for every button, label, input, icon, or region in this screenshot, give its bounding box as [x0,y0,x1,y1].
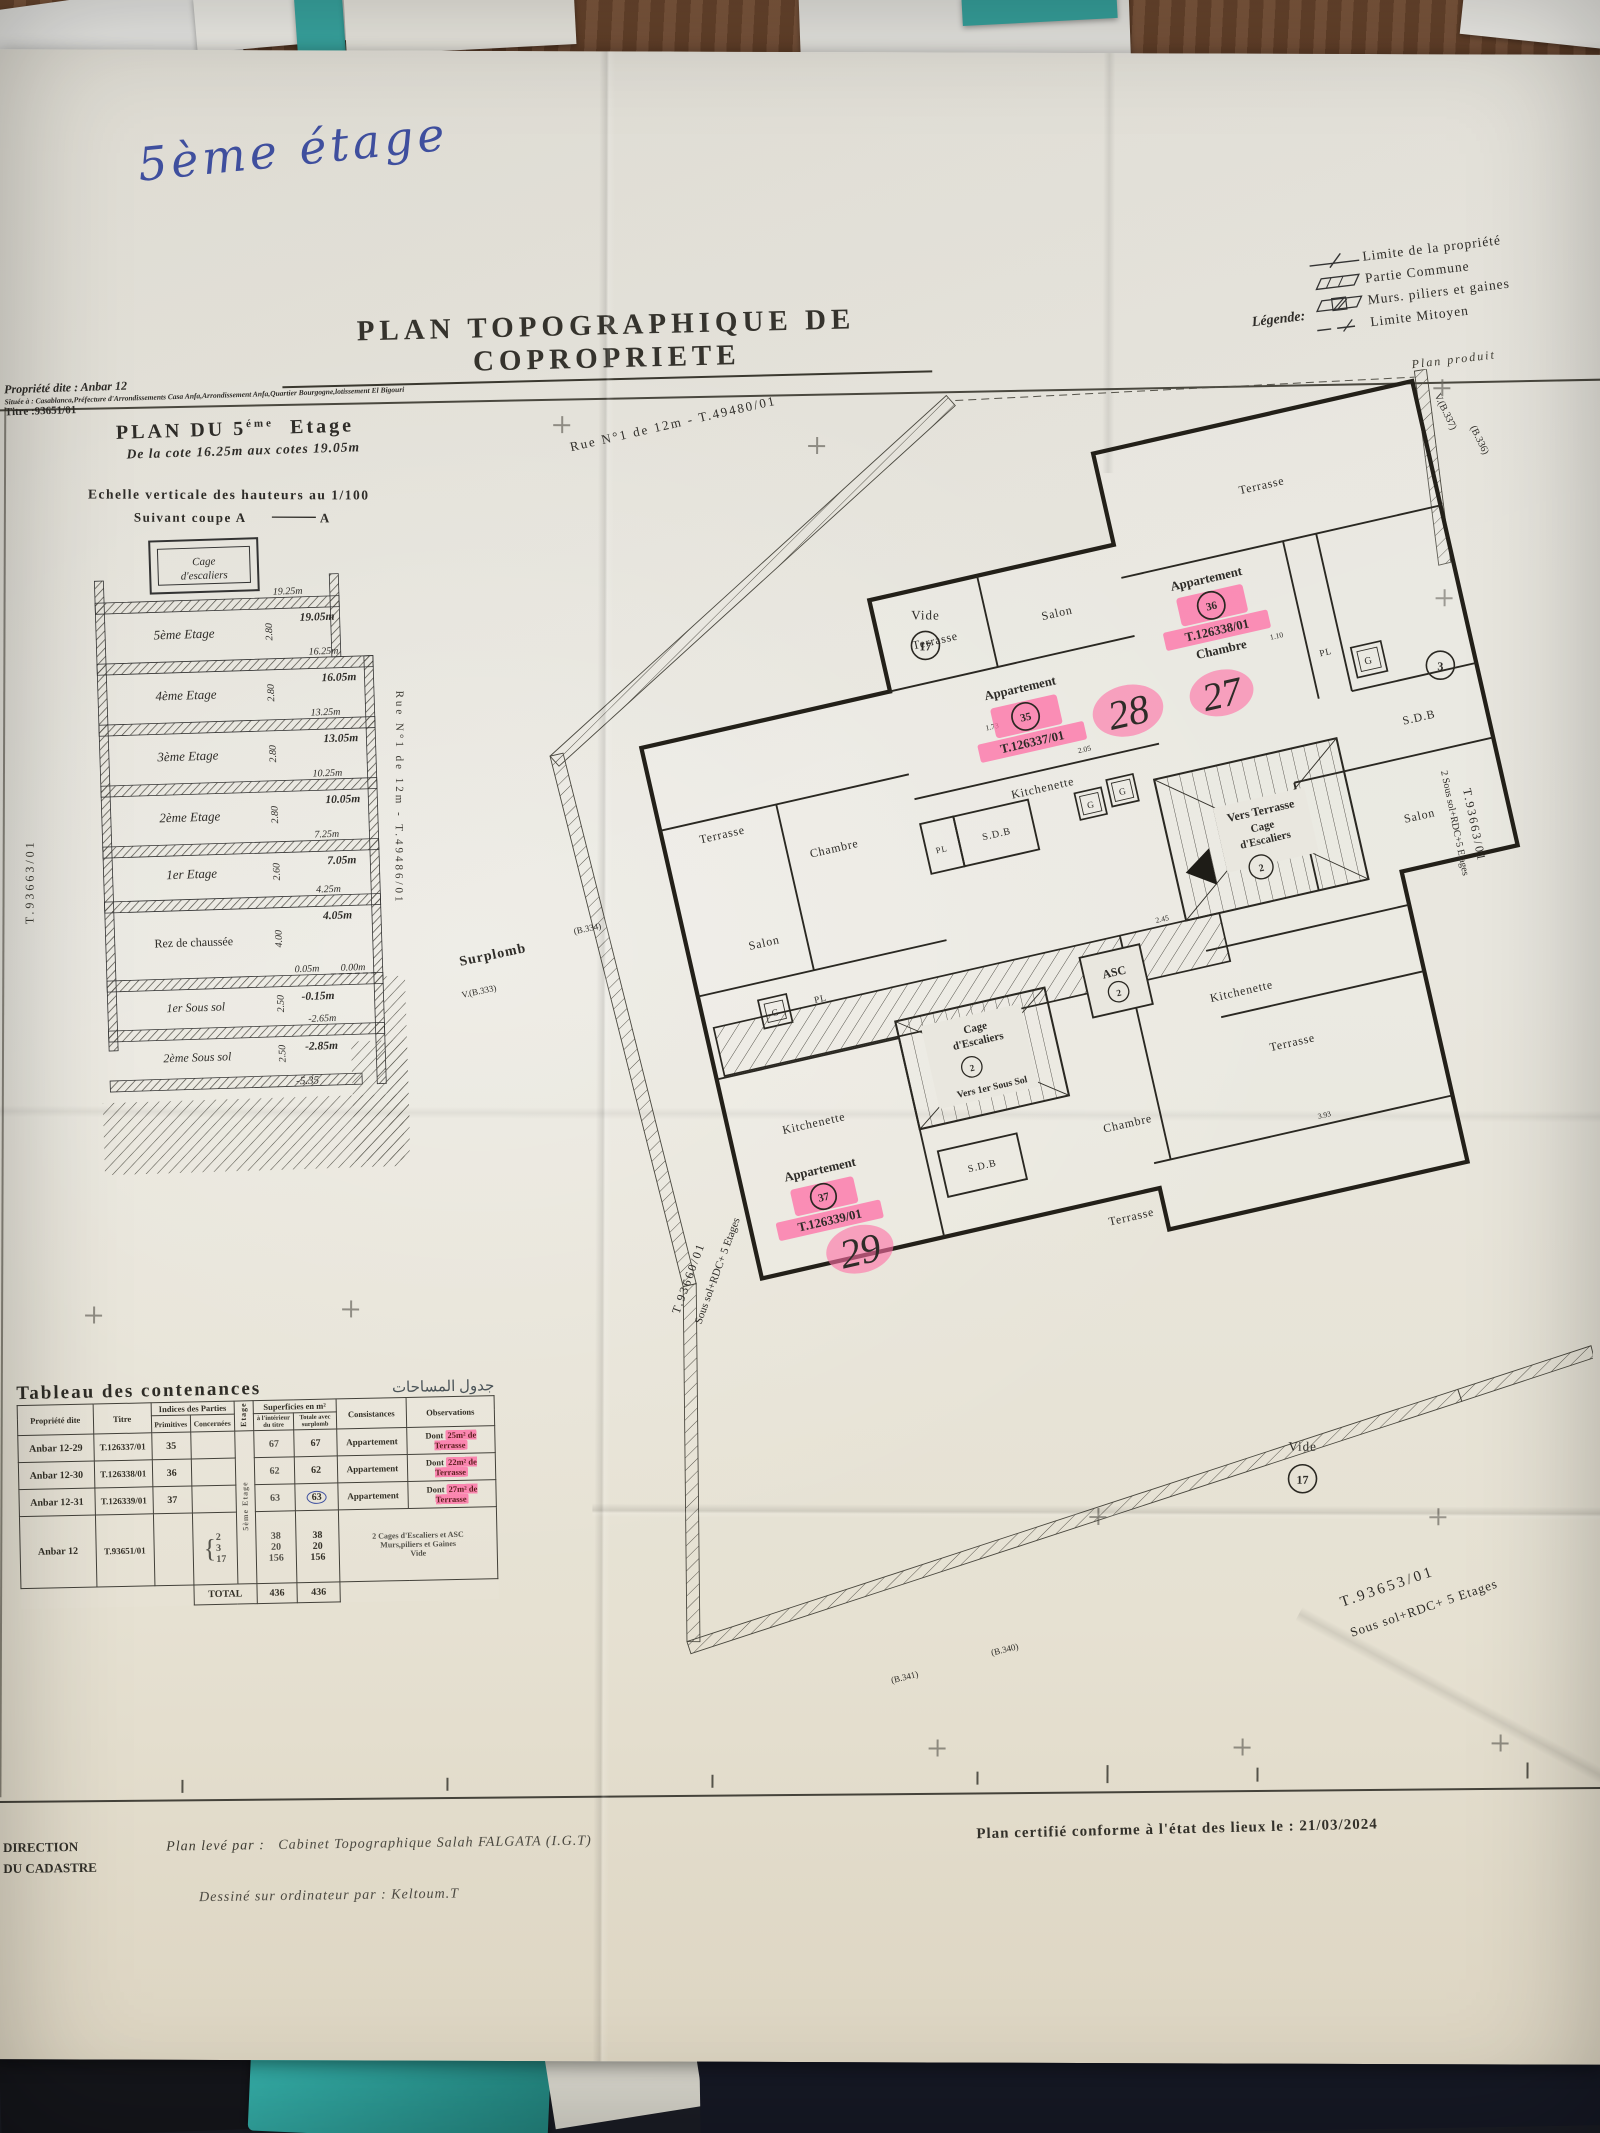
certification-note: Plan certifié conforme à l'état des lieu… [976,1816,1378,1843]
sheet-left-border [0,407,6,1797]
cell-sup2: 38 20 156 [296,1510,340,1583]
obs-prefix: Dont [425,1430,443,1440]
col-consistances: Consistances [336,1397,407,1428]
obs-prefix: Dont [426,1484,444,1494]
register-cross-icon [342,1300,359,1317]
cell-prim: 37 [153,1486,192,1514]
sup-value: 38 [258,1530,294,1542]
vide-index: 17 [1297,1473,1309,1487]
floor-plan-drawing: Vers Terrasse Cage d'Escaliers 2 ASC 2 [451,366,1596,1810]
legend-title: Légende: [1251,309,1306,331]
cote: 19.25m [273,586,303,598]
footer-tick [1106,1765,1108,1783]
cell-sup1: 62 [254,1457,295,1485]
storey-height: 2.80 [264,623,276,641]
col-sup-surplomb: Totale avec surplomb [293,1412,336,1430]
footer-tick [1526,1763,1528,1779]
cell-titre: T.126338/01 [94,1460,153,1488]
cell-cons: Appartement [337,1454,408,1482]
street-label: Rue N°1 de 12m - T.49480/01 [568,393,777,454]
section-title: Echelle verticale des hauteurs au 1/100 [88,487,370,503]
cell-sup1: 63 [255,1484,296,1512]
cell-conc [191,1485,236,1513]
plan-leve-par: Plan levé par : Cabinet Topographique Sa… [166,1834,592,1856]
vertical-section-drawing: Echelle verticale des hauteurs au 1/100 … [73,484,412,1209]
direction-line1: DIRECTION [3,1837,97,1859]
cell-conc [191,1458,236,1486]
vide-label: Vide [1288,1439,1317,1454]
cell-titre: T.126339/01 [94,1487,153,1515]
storey-height: 2.80 [268,745,280,763]
cote: 4.25m [316,884,341,896]
storey-height: 2.80 [270,806,282,824]
vide-label: Vide [911,607,940,622]
section-subtitle: Suivant coupe A [134,510,247,525]
cell-sup2: 67 [294,1429,337,1457]
floor-label: 5ème Etage [153,626,215,643]
cell-cons: Appartement [338,1481,409,1509]
handwritten-floor-note: 5ème étage [135,107,451,192]
cote: -2.65m [308,1013,336,1025]
ground-hatch [103,1094,405,1175]
contenance-table-block: Tableau des contenances جدول المساحات Pr… [16,1373,499,1609]
cell-titre: T.126337/01 [93,1433,152,1461]
floor-label: 3ème Etage [156,747,219,764]
sup-value: 156 [299,1551,337,1563]
borne-mark: V.(B.337) [1432,392,1459,432]
cell-conc: { 2 3 17 [192,1512,238,1585]
vide-index: 17 [919,639,931,653]
storey-height: 2.60 [271,863,283,881]
leve-label: Plan levé par : [166,1838,265,1854]
cell-prim: 36 [152,1459,191,1487]
borne-mark: (B.341) [890,1669,919,1685]
obs-prefix: Dont [426,1457,444,1467]
plan-sheet: 5ème étage PLAN TOPOGRAPHIQUE DE COPROPR… [0,49,1600,2065]
sup-value: 38 [298,1529,336,1541]
floor-title-tail: Etage [290,414,355,438]
legend: Légende: Limite de la propriété Partie C… [1244,229,1513,347]
cell-conc [190,1431,235,1459]
floor-title: PLAN DU 5 [116,418,247,444]
cell-blank [21,1585,194,1609]
borne-mark: (B.340) [990,1641,1019,1657]
cote: -0.15m [301,990,334,1003]
cell-sup2: 62 [294,1456,337,1484]
cell-prop: Anbar 12-30 [18,1461,94,1490]
footer-tick [446,1778,448,1791]
col-propriete: Propriété dite [17,1404,93,1436]
floor-label: 2ème Etage [159,808,221,825]
surplomb-label: Surplomb [458,941,528,970]
conc-index: 3 [216,1543,226,1554]
register-cross-icon [85,1307,102,1324]
total-sup2: 436 [297,1582,340,1603]
sup-value: 20 [299,1540,337,1552]
total-sup1: 436 [257,1583,298,1604]
footer-tick [711,1775,713,1788]
floor-label: 4ème Etage [155,687,217,704]
footer-tick [976,1772,978,1785]
cell-sup1: 67 [254,1430,295,1458]
storey-height: 2.80 [266,684,278,702]
building-outline [600,381,1584,1320]
conc-index: 2 [216,1532,226,1543]
etage-value: 5ème Etage [241,1481,251,1531]
section-subtitle-end: A [320,510,330,525]
cote: 13.25m [310,707,340,719]
cote: 7.05m [327,854,356,867]
borne-mark: (B.336) [1468,424,1491,457]
storey-height: 2.50 [275,995,287,1013]
col-etage: Etage [234,1401,254,1431]
col-etage-label: Etage [239,1403,249,1428]
cell-prim: 35 [152,1432,191,1460]
cell-sup2: 63 [295,1483,338,1511]
total-label: TOTAL [193,1584,257,1605]
building: Vers Terrasse Cage d'Escaliers 2 ASC 2 [600,381,1584,1320]
cell-sup1: 38 20 156 [255,1511,297,1584]
cote: -5.35 [296,1074,320,1087]
direction-cadastre: DIRECTION DU CADASTRE [3,1837,97,1880]
floor-label: 1er Sous sol [166,999,226,1015]
common-part-index: 3 [1437,659,1443,673]
photo-of-cadastral-plan: 5ème étage PLAN TOPOGRAPHIQUE DE COPROPR… [0,0,1600,2133]
section-street-ref: Rue N°1 de 12m - T.49486/01 [393,691,406,905]
elevator-asc: ASC 2 [1080,944,1153,1017]
cote: 4.05m [322,909,352,922]
cote: 7.25m [314,829,339,841]
storey-height: 4.00 [273,930,285,948]
section-left-title-ref: T.93663/01 [22,839,37,924]
room-label-terrasse: Terrasse [1107,1205,1155,1229]
cote: 10.25m [312,768,342,780]
party-wall-symbol-icon [1314,314,1372,337]
blue-pen-circle: 63 [307,1490,327,1503]
sup-value: 156 [259,1552,295,1564]
footer-tick [181,1780,183,1793]
cote-zero: 0.00m [340,962,365,974]
floor-plan-header: PLAN DU 5éme Etage De la cote 16.25m aux… [116,414,361,463]
cote: 10.05m [325,793,360,806]
cell-cons: Appartement [337,1427,408,1455]
floor-label: Rez de chaussée [154,934,233,950]
storey-height: 2.50 [277,1045,289,1063]
footer-tick [1256,1768,1258,1782]
borne-mark: V.(B.333) [461,983,498,1000]
col-titre: Titre [93,1403,152,1434]
cell-titre: T.93651/01 [95,1514,155,1587]
cote: -2.85m [305,1040,338,1053]
col-sup-titre: à l'intérieur du titre [253,1413,294,1431]
cage-escaliers-label: Cage [192,555,216,568]
cage-escaliers-label2: d'escaliers [181,569,228,582]
cote: 16.05m [321,671,356,684]
cote: 19.05m [299,611,334,624]
direction-line2: DU CADASTRE [3,1858,97,1880]
dessine-par: Dessiné sur ordinateur par : Keltoum.T [199,1887,459,1907]
conc-index: 17 [216,1554,226,1565]
cote: 0.05m [295,963,320,975]
cell-prop: Anbar 12 [19,1515,96,1589]
cell-prim [153,1513,193,1586]
table-row-common-parts: Anbar 12 T.93651/01 { 2 3 17 [19,1507,497,1589]
floor-label: 1er Etage [166,866,218,883]
leve-value: Cabinet Topographique Salah FALGATA (I.G… [278,1834,592,1853]
cell-prop: Anbar 12-31 [19,1488,95,1517]
adjacent-title-desc: Sous sol+RDC+ 5 Etages [693,1216,743,1326]
cote: 16.25m [309,646,339,658]
sup-value: 20 [258,1541,294,1553]
cell-prop: Anbar 12-29 [18,1434,94,1463]
col-concernees: Concernées [190,1414,235,1432]
floor-label: 2ème Sous sol [163,1049,232,1065]
contenance-table: Propriété dite Titre Indices des Parties… [17,1395,499,1609]
brace: { [203,1533,216,1563]
section-body: Cage d'escaliers 5ème Etage 4ème Etage 3… [85,534,411,1175]
cote: 13.05m [323,732,358,745]
floor-title-sup: éme [246,417,274,430]
col-primitives: Primitives [151,1415,190,1433]
